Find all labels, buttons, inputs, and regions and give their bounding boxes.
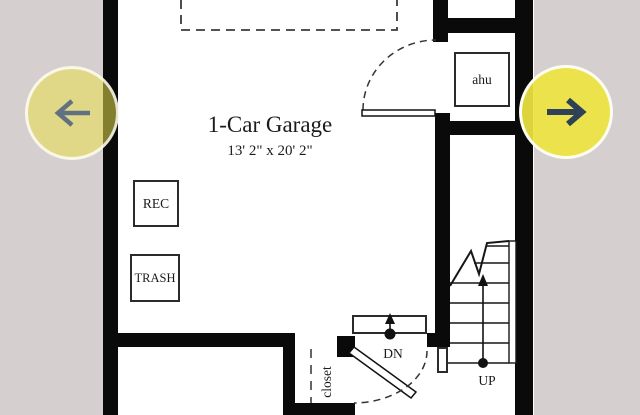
trash-label: TRASH	[135, 271, 176, 286]
dn-stair-landing	[352, 315, 427, 334]
wall-left-outer	[103, 0, 118, 415]
wall-garage-right	[435, 113, 450, 347]
closet-label: closet	[320, 354, 336, 410]
wall-garage-ahu-upper	[433, 0, 448, 42]
rec-label: REC	[143, 196, 169, 212]
room-dimensions: 13' 2" x 20' 2"	[155, 144, 385, 160]
next-photo-button[interactable]	[519, 65, 613, 159]
up-label: UP	[466, 374, 508, 388]
ahu-label: ahu	[472, 72, 492, 88]
arrow-right-icon	[542, 94, 590, 130]
wall-right-outer	[515, 0, 533, 415]
ahu-box: ahu	[454, 52, 510, 107]
stair-jamb	[437, 347, 448, 373]
wall-dn-right	[427, 333, 450, 347]
dn-label: DN	[371, 347, 415, 361]
previous-photo-button[interactable]	[25, 66, 119, 160]
room-title: 1-Car Garage	[155, 113, 385, 137]
floorplan-viewer: REC TRASH ahu 1-Car Garag	[0, 0, 640, 415]
wall-closet-bottom	[283, 403, 355, 415]
wall-main-horizontal	[117, 333, 295, 347]
wall-ahu-bottom	[448, 121, 516, 135]
arrow-left-icon	[48, 96, 96, 130]
wall-door-hinge-block	[337, 336, 355, 357]
wall-closet-left	[283, 347, 295, 405]
rec-box: REC	[133, 180, 179, 227]
trash-box: TRASH	[130, 254, 180, 302]
wall-ahu-top	[448, 18, 516, 33]
